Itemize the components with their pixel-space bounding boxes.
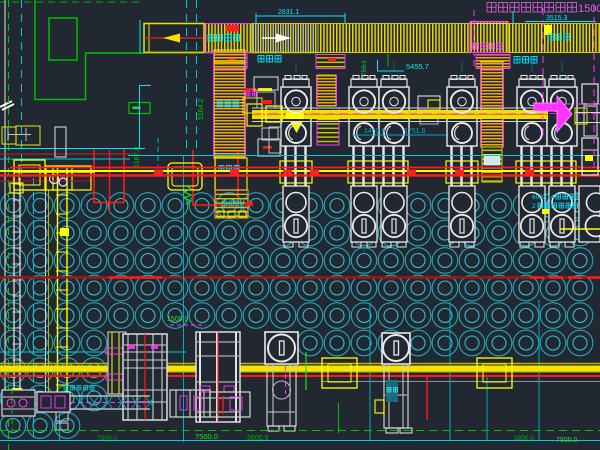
svg-text:1600.0: 1600.0 (514, 435, 534, 442)
svg-text:600X14: 600X14 (532, 194, 555, 201)
svg-text:5455.7: 5455.7 (406, 62, 429, 71)
svg-text:1500mm: 1500mm (578, 3, 600, 15)
svg-text:7500.0: 7500.0 (97, 435, 117, 442)
svg-text:5164.2: 5164.2 (198, 98, 205, 120)
svg-text:7500.0: 7500.0 (195, 432, 218, 441)
svg-text:756.1: 756.1 (361, 59, 368, 76)
svg-text:5167.8: 5167.8 (134, 146, 141, 168)
svg-text:3515.3: 3515.3 (546, 15, 568, 22)
svg-text:2600.0: 2600.0 (247, 435, 269, 442)
svg-text:1463.9: 1463.9 (364, 128, 386, 135)
svg-text:1751.6: 1751.6 (404, 128, 426, 135)
svg-text:2: 2 (532, 203, 536, 210)
svg-text:7500.0: 7500.0 (556, 437, 578, 444)
svg-text:1500.0: 1500.0 (167, 316, 189, 323)
svg-text:2631.1: 2631.1 (278, 9, 300, 16)
